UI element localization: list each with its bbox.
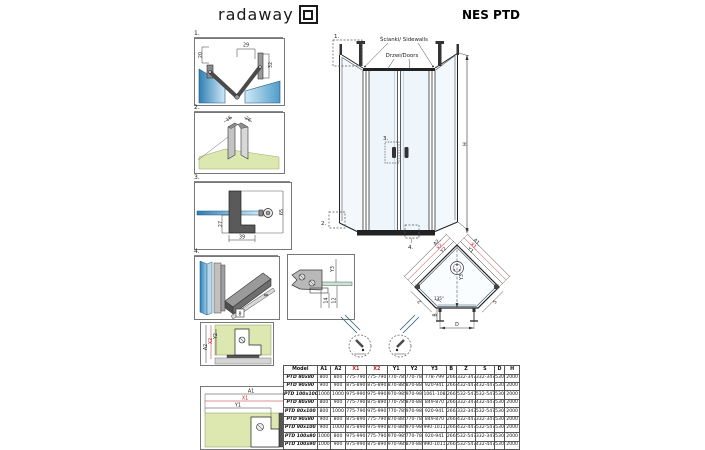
page-title: NES PTD — [420, 8, 520, 22]
dim-14: 14 — [324, 297, 330, 303]
dim-8-side: 8 — [262, 293, 268, 296]
value-cell: 900 — [331, 399, 346, 407]
radaway-logo: radaway — [218, 5, 318, 24]
value-cell: 530 — [494, 433, 504, 441]
radaway-square-icon — [299, 5, 318, 24]
value-cell: 920-941 — [423, 408, 446, 416]
value-cell: 2000 — [505, 374, 520, 382]
value-cell: 432-447 — [475, 399, 494, 407]
value-cell: 332-347 — [457, 374, 476, 382]
value-cell: 530 — [494, 374, 504, 382]
door-feet — [436, 308, 478, 321]
door-handle-right — [405, 147, 409, 158]
dim-x1: X1 — [242, 396, 248, 402]
callout-1-label: 1. — [334, 34, 339, 40]
value-cell: 775-790 — [345, 408, 366, 416]
detail-4-bottom-rail: 8 8 — [194, 256, 280, 320]
plan-y3-label: Y3 — [459, 274, 465, 281]
value-cell: 920-941 — [423, 383, 446, 391]
detail-2-wall-profile: 16 26 — [194, 112, 285, 174]
angle-label: 135° — [434, 296, 444, 301]
detail-2-drawing: 16 26 — [195, 113, 284, 173]
value-cell: 778-799 — [423, 374, 446, 382]
value-cell: 266 — [446, 425, 456, 433]
value-cell: 970-985 — [405, 425, 423, 433]
value-cell: 970-985 — [405, 391, 423, 399]
table-row: PTD 80x1008001000775-790975-990770-78597… — [284, 408, 520, 416]
value-cell: 2000 — [505, 433, 520, 441]
right-sidewall-glass — [435, 53, 458, 233]
col-header-z: Z — [457, 366, 476, 375]
value-cell: 266 — [446, 383, 456, 391]
col-header-b: B — [446, 366, 456, 375]
value-cell: 2000 — [505, 441, 520, 449]
value-cell: 266 — [446, 399, 456, 407]
value-cell: 900 — [317, 416, 331, 424]
left-sidewall-glass — [339, 55, 363, 233]
glass-top-view — [321, 282, 352, 286]
value-cell: 532-547 — [457, 433, 476, 441]
value-cell: 1000 — [317, 391, 331, 399]
col-header-y2: Y2 — [405, 366, 423, 375]
corner-profile-left — [416, 285, 421, 290]
knob-neck — [259, 210, 263, 216]
value-cell: 975-990 — [345, 441, 366, 449]
model-cell: PTD 80x80 — [284, 374, 318, 382]
col-header-d: D — [494, 366, 504, 375]
value-cell: 770-785 — [405, 433, 423, 441]
callout-3-label: 3. — [383, 136, 388, 142]
floor-strip — [215, 358, 271, 364]
value-cell: 870-885 — [405, 383, 423, 391]
value-cell: 532-547 — [475, 425, 494, 433]
value-cell: 975-990 — [366, 391, 387, 399]
wall-mount-vertical-detail: A2 X2 Y2 — [200, 322, 274, 366]
detail-3-number: 3. — [194, 174, 290, 182]
value-cell: 900 — [331, 441, 346, 449]
value-cell: 775-790 — [366, 374, 387, 382]
detail-4-drawing: 8 8 — [195, 257, 279, 319]
value-cell: 1000 — [317, 441, 331, 449]
value-cell: 875-890 — [366, 441, 387, 449]
value-cell: 1061-1082 — [423, 391, 446, 399]
table-row: PTD 100x801000800975-990775-790970-98577… — [284, 433, 520, 441]
table-row: PTD 90x80900800875-890775-790870-885770-… — [284, 416, 520, 424]
dim-y1: Y1 — [234, 403, 241, 409]
glass-panel-right — [245, 81, 280, 103]
model-cell: PTD 90x100 — [284, 425, 318, 433]
value-cell: 1000 — [317, 433, 331, 441]
value-cell: 332-347 — [475, 374, 494, 382]
spec-table-head-row: ModelA1A2X1X2Y1Y2Y3BZSDH — [284, 366, 520, 375]
detail-2-number: 2. — [194, 104, 283, 112]
value-cell: 2000 — [505, 391, 520, 399]
value-cell: 975-990 — [345, 433, 366, 441]
value-cell: 530 — [494, 416, 504, 424]
value-cell: 800 — [317, 408, 331, 416]
value-cell: 770-785 — [387, 399, 405, 407]
value-cell: 970-985 — [387, 391, 405, 399]
table-row: PTD 80x80800800775-790775-790770-785770-… — [284, 374, 520, 382]
value-cell: 900 — [317, 425, 331, 433]
detail-3-handle-section: 27 39 65 — [194, 182, 292, 250]
value-cell: 432-447 — [475, 441, 494, 449]
value-cell: 975-990 — [366, 425, 387, 433]
col-header-x2: X2 — [366, 366, 387, 375]
value-cell: 849-870 — [423, 399, 446, 407]
col-header-model: Model — [284, 366, 318, 375]
dim-26: 26 — [244, 115, 252, 123]
value-cell: 770-785 — [405, 416, 423, 424]
table-row: PTD 90x1009001000875-890975-990870-88597… — [284, 425, 520, 433]
model-cell: PTD 90x90 — [284, 383, 318, 391]
h-dim-label: H — [463, 142, 469, 146]
table-row: PTD 90x90900900875-890875-890870-885870-… — [284, 383, 520, 391]
model-cell: PTD 80x90 — [284, 399, 318, 407]
value-cell: 266 — [446, 416, 456, 424]
table-row: PTD 100x10010001000975-990975-990970-985… — [284, 391, 520, 399]
value-cell: 432-447 — [457, 416, 476, 424]
value-cell: 432-447 — [475, 383, 494, 391]
value-cell: 970-985 — [387, 433, 405, 441]
model-cell: PTD 90x80 — [284, 416, 318, 424]
value-cell: 775-790 — [345, 399, 366, 407]
detail-1-drawing: 20 29 32 — [195, 39, 284, 105]
plan-z-label: Z — [415, 299, 422, 306]
value-cell: 870-885 — [405, 441, 423, 449]
plan-s-label: S — [492, 299, 498, 305]
value-cell: 970-985 — [405, 408, 423, 416]
value-cell: 530 — [494, 383, 504, 391]
value-cell: 900 — [317, 383, 331, 391]
value-cell: 530 — [494, 391, 504, 399]
value-cell: 266 — [446, 433, 456, 441]
value-cell: 770-785 — [387, 408, 405, 416]
plan-b-label: B — [433, 313, 439, 316]
col-header-a2: A2 — [331, 366, 346, 375]
model-cell: PTD 80x100 — [284, 408, 318, 416]
model-cell: PTD 100x100 — [284, 391, 318, 399]
value-cell: 870-885 — [387, 416, 405, 424]
value-cell: 1000 — [331, 425, 346, 433]
bracket-screw — [209, 71, 212, 74]
col-header-a1: A1 — [317, 366, 331, 375]
glass-panel — [200, 261, 207, 315]
value-cell: 975-990 — [366, 408, 387, 416]
detail-1-corner-bracket: 20 29 32 — [194, 38, 285, 106]
value-cell: 266 — [446, 374, 456, 382]
value-cell: 800 — [331, 374, 346, 382]
value-cell: 920-941 — [423, 433, 446, 441]
sidewalls-label: Ścianki/ Sidewalls — [380, 36, 428, 43]
value-cell: 530 — [494, 408, 504, 416]
value-cell: 870-885 — [387, 383, 405, 391]
doors-label: Drzwi/Doors — [386, 53, 419, 59]
value-cell: 775-790 — [345, 374, 366, 382]
left-wall-bar — [341, 315, 360, 333]
value-cell: 432-447 — [457, 383, 476, 391]
bracket-screw — [259, 66, 262, 69]
value-cell: 532-547 — [475, 391, 494, 399]
value-cell: 990-1011 — [423, 425, 446, 433]
value-cell: 875-890 — [366, 383, 387, 391]
value-cell: 1000 — [331, 408, 346, 416]
dim-39: 39 — [239, 235, 245, 241]
value-cell: 770-785 — [387, 374, 405, 382]
value-cell: 266 — [446, 441, 456, 449]
brand-name: radaway — [218, 5, 294, 24]
wall-vertical-drawing: A2 X2 Y2 — [201, 323, 273, 365]
model-cell: PTD 100x80 — [284, 433, 318, 441]
value-cell: 532-547 — [475, 408, 494, 416]
callout-2-label: 2. — [321, 221, 326, 227]
value-cell: 332-347 — [475, 416, 494, 424]
door-profile — [214, 263, 221, 313]
value-cell: 2000 — [505, 399, 520, 407]
value-cell: 875-890 — [345, 416, 366, 424]
value-cell: 870-885 — [405, 399, 423, 407]
value-cell: 530 — [494, 399, 504, 407]
dim-29: 29 — [243, 43, 249, 49]
wall-bracket — [292, 270, 322, 290]
plan-view: Y3 135° A1, X1, Y1 A2, X2, Y2 Z S — [396, 228, 526, 368]
value-cell: 2000 — [505, 408, 520, 416]
table-row: PTD 80x90800900775-790875-890770-785870-… — [284, 399, 520, 407]
value-cell: 530 — [494, 425, 504, 433]
dim-20: 20 — [198, 52, 204, 58]
spec-table: ModelA1A2X1X2Y1Y2Y3BZSDH PTD 80x80800800… — [283, 365, 520, 450]
col-header-x1: X1 — [345, 366, 366, 375]
value-cell: 532-547 — [457, 391, 476, 399]
value-cell: 530 — [494, 441, 504, 449]
value-cell: 266 — [446, 408, 456, 416]
dim-12: 12 — [332, 297, 338, 303]
value-cell: 775-790 — [366, 416, 387, 424]
dim-16: 16 — [225, 115, 233, 123]
value-cell: 800 — [317, 374, 331, 382]
dim-65: 65 — [279, 209, 285, 215]
value-cell: 800 — [331, 433, 346, 441]
bottom-rail — [227, 355, 259, 358]
door-handle-left — [392, 147, 396, 158]
floor — [199, 149, 279, 169]
value-cell: 2000 — [505, 425, 520, 433]
corner-profile-right — [494, 285, 499, 290]
dim-27: 27 — [218, 221, 224, 227]
model-cell: PTD 100x90 — [284, 441, 318, 449]
value-cell: 332-347 — [457, 408, 476, 416]
door-profile-edge — [221, 265, 225, 311]
detail-1-number: 1. — [194, 30, 283, 38]
value-cell: 532-547 — [457, 441, 476, 449]
dim-y2: Y2 — [213, 333, 219, 340]
top-rail — [363, 68, 435, 71]
value-cell: 2000 — [505, 416, 520, 424]
value-cell: 875-890 — [345, 383, 366, 391]
value-cell: 849-870 — [423, 416, 446, 424]
glass-section — [197, 211, 259, 215]
page: radaway NES PTD 1. — [0, 0, 705, 450]
hinge-detail: Y3 14 12 — [287, 254, 355, 320]
value-cell: 870-885 — [387, 425, 405, 433]
value-cell: 332-347 — [457, 399, 476, 407]
glass-edge — [207, 262, 212, 315]
bracket-pivot — [235, 95, 239, 99]
value-cell: 1000 — [331, 391, 346, 399]
value-cell: 970-985 — [387, 441, 405, 449]
col-header-y1: Y1 — [387, 366, 405, 375]
col-header-y3: Y3 — [423, 366, 446, 375]
dim-32: 32 — [268, 62, 274, 68]
dim-y3: Y3 — [330, 266, 336, 273]
value-cell: 332-347 — [475, 433, 494, 441]
value-cell: 875-890 — [345, 425, 366, 433]
table-row: PTD 100x901000900975-990875-890970-98587… — [284, 441, 520, 449]
value-cell: 770-785 — [405, 374, 423, 382]
dim-8-box: 8 — [238, 311, 241, 317]
value-cell: 266 — [446, 391, 456, 399]
value-cell: 775-790 — [366, 433, 387, 441]
detail-3-drawing: 27 39 65 — [195, 183, 291, 249]
value-cell: 875-890 — [366, 399, 387, 407]
front-elevation: 1. 2. 3. 4. Ścianki/ Sidewalls Drzwi/Doo… — [318, 28, 473, 252]
value-cell: 800 — [331, 416, 346, 424]
value-cell: 975-990 — [345, 391, 366, 399]
knob-center — [266, 211, 270, 215]
detail-4-number: 4. — [194, 248, 278, 256]
dim-a1: A1 — [248, 389, 254, 395]
hinge-detail-drawing: Y3 14 12 — [288, 255, 354, 319]
col-header-s: S — [475, 366, 494, 375]
value-cell: 800 — [317, 399, 331, 407]
plan-d-label: D — [455, 322, 459, 328]
spec-table-body: PTD 80x80800800775-790775-790770-785770-… — [284, 374, 520, 450]
value-cell: 2000 — [505, 383, 520, 391]
col-header-h: H — [505, 366, 520, 375]
value-cell: 432-447 — [457, 425, 476, 433]
value-cell: 990-1011 — [423, 441, 446, 449]
value-cell: 900 — [331, 383, 346, 391]
